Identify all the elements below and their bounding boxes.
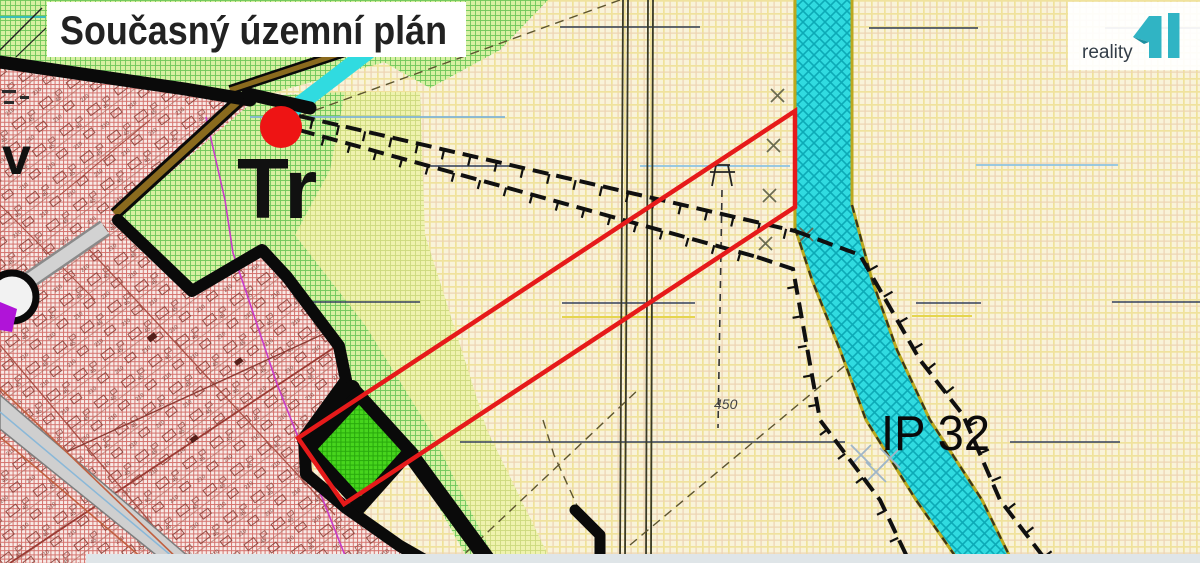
- svg-text:IP 32: IP 32: [881, 407, 990, 461]
- svg-text:450: 450: [714, 396, 738, 412]
- svg-text:Současný územní plán: Současný územní plán: [60, 9, 447, 53]
- svg-text:reality: reality: [1082, 42, 1133, 63]
- svg-text:Tr: Tr: [237, 142, 317, 237]
- svg-text:v: v: [2, 128, 31, 186]
